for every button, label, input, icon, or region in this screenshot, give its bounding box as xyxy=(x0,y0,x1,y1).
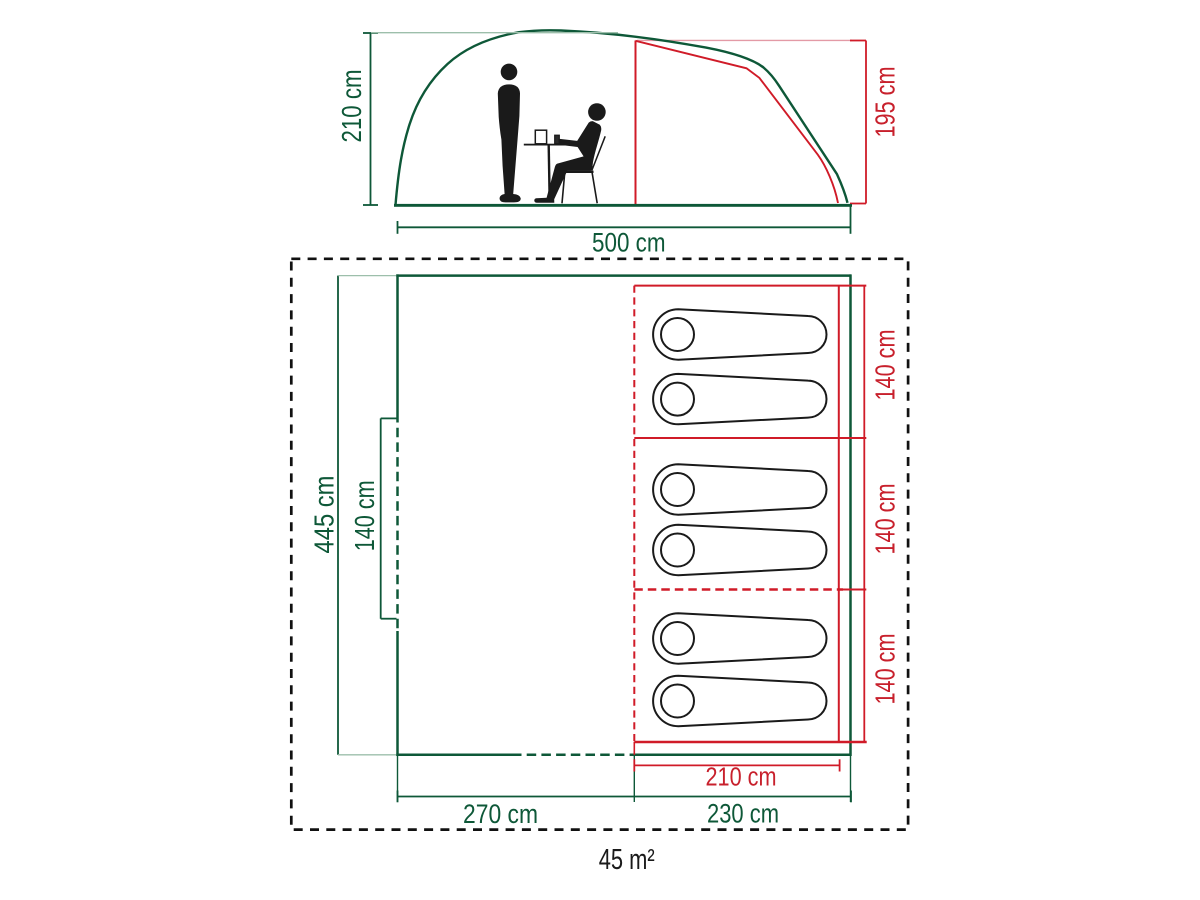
svg-text:230 cm: 230 cm xyxy=(707,799,779,829)
svg-text:45 m²: 45 m² xyxy=(599,844,655,876)
svg-text:270 cm: 270 cm xyxy=(463,799,538,829)
svg-text:500 cm: 500 cm xyxy=(592,228,666,258)
svg-text:140 cm: 140 cm xyxy=(870,484,901,555)
svg-text:195 cm: 195 cm xyxy=(870,67,901,138)
svg-text:210 cm: 210 cm xyxy=(706,764,777,792)
svg-text:210 cm: 210 cm xyxy=(336,70,367,143)
svg-text:140 cm: 140 cm xyxy=(870,330,901,401)
svg-text:140 cm: 140 cm xyxy=(349,480,380,551)
svg-text:140 cm: 140 cm xyxy=(870,634,901,705)
svg-text:445 cm: 445 cm xyxy=(309,476,340,554)
